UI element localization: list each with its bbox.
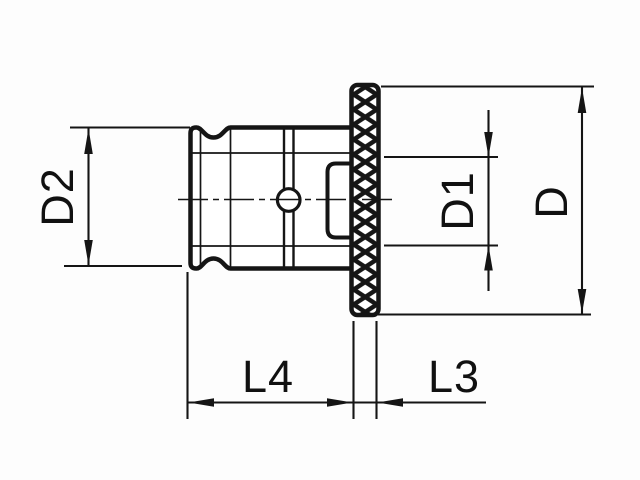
technical-drawing-svg: D2 D1 D L4 (0, 0, 640, 480)
dimension-d2: D2 (32, 128, 190, 267)
d-arrowhead-down (578, 289, 587, 314)
d-arrowhead-up (578, 88, 587, 114)
label-d1: D1 (432, 171, 483, 231)
label-d2: D2 (32, 167, 83, 227)
l4-arrowhead-left (189, 398, 215, 406)
label-l4: L4 (242, 351, 294, 402)
d2-arrowhead-down (84, 240, 93, 265)
dimension-d1: D1 (384, 110, 498, 291)
label-d: D (526, 185, 577, 219)
drawing-canvas: D2 D1 D L4 (0, 0, 640, 480)
l4-l3-shared-arrowhead (327, 398, 353, 406)
d1-arrowhead-down (484, 132, 493, 157)
dimension-l4-l3: L4 L3 (188, 272, 487, 419)
l3-arrowhead-right (378, 398, 404, 406)
dimension-d: D (378, 87, 594, 315)
d2-arrowhead-up (84, 129, 93, 155)
d1-arrowhead-up (484, 246, 493, 271)
adapter-body-group (178, 85, 394, 315)
label-l3: L3 (428, 351, 480, 402)
